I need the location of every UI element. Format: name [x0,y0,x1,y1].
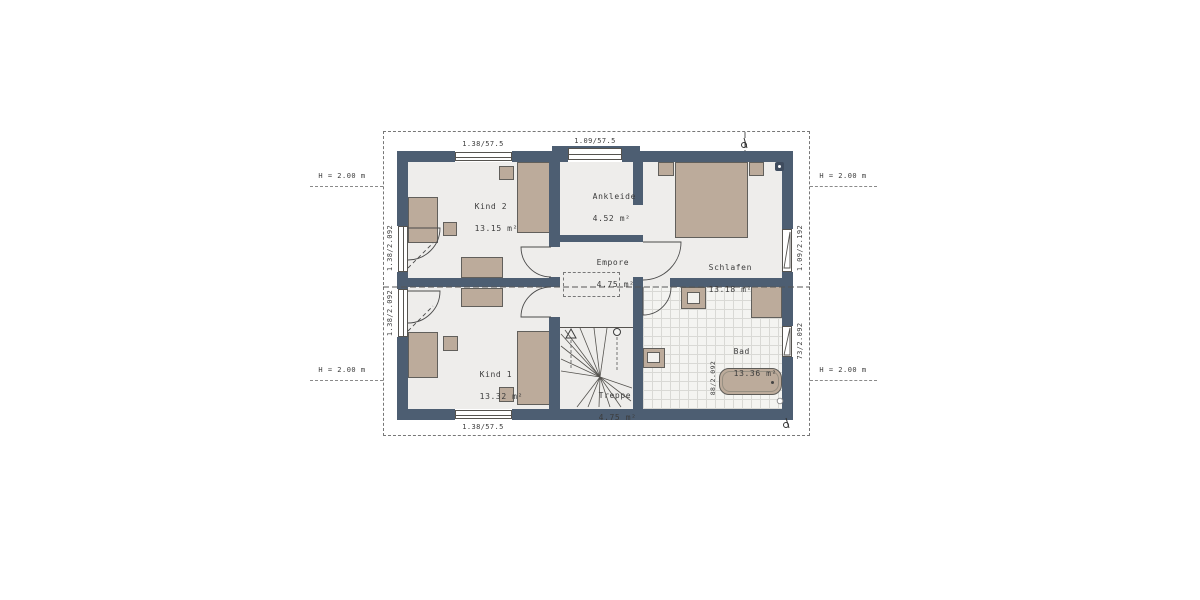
height-marker-line [810,186,877,187]
chair [443,336,458,351]
room-name: Schlafen [709,263,752,272]
wall-segment [397,151,408,226]
room-area: 13.18 m² [709,285,752,294]
french-door-kind2-left [398,226,408,272]
dim-door-kind1-left: 1.38/2.092 [386,290,394,336]
wall-segment [397,337,408,420]
height-marker-line [810,380,877,381]
nightstand-right [749,162,764,176]
height-marker-left-top: H = 2.00 m [318,172,365,180]
dresser [461,257,503,278]
room-area: 4.75 m² [597,280,635,289]
room-label-schlafen: Schlafen 13.18 m² [687,251,752,306]
room-label-bad: Bad 13.36 m² [712,335,777,390]
room-name: Treppe [599,391,632,400]
room-area: 13.15 m² [475,224,518,233]
room-name: Empore [597,258,630,267]
dim-window-kind1-bottom: 1.38/57.5 [462,423,504,431]
ceiling-detector-icon [775,162,784,171]
dim-window-kind2-top: 1.38/57.5 [462,140,504,148]
room-label-treppe: Treppe 4.75 m² [577,379,637,434]
wall-segment [397,278,549,287]
window-kind2-top [455,152,512,161]
desk [408,197,438,243]
height-marker-line [310,380,383,381]
washbasin-bowl [647,352,660,363]
dim-window-ankleide-top: 1.09/57.5 [574,137,616,145]
dim-window-schlafen-right: 1.09/2.192 [796,225,804,271]
room-area: 4.52 m² [593,214,631,223]
desk [408,332,438,378]
room-label-kind1: Kind 1 13.32 m² [458,358,523,413]
height-marker-line [310,186,383,187]
window-bad-right [782,326,792,357]
room-name: Bad [734,347,750,356]
wall-segment [782,357,793,420]
shower [751,286,782,318]
dim-window-bad-right: 73/2.092 [796,323,804,360]
dresser [461,288,503,307]
room-name: Ankleide [593,192,636,201]
room-label-ankleide: Ankleide 4.52 m² [571,180,636,235]
room-name: Kind 1 [480,370,513,379]
bed [517,162,551,233]
room-name: Kind 2 [475,202,508,211]
window-ankleide-top [568,148,622,160]
french-door-kind1-left [398,289,408,337]
window-schlafen-right [782,229,792,272]
wall-segment [622,151,793,162]
height-marker-right-bottom: H = 2.00 m [819,366,866,374]
height-marker-left-bottom: H = 2.00 m [318,366,365,374]
dim-door-kind2-left: 1.38/2.092 [386,225,394,271]
stair-edge [560,327,633,328]
wall-segment [512,409,793,420]
dim-bad-interior: 88/2.092 [709,361,717,396]
wall-segment [549,235,643,242]
room-area: 13.36 m² [734,369,777,378]
wall-segment [512,151,568,162]
wall-segment [549,317,560,409]
floor-plan: Kind 2 13.15 m² Ankleide 4.52 m² Schlafe… [0,0,1200,600]
room-area: 13.32 m² [480,392,523,401]
room-label-empore: Empore 4.75 m² [575,246,635,301]
room-label-kind2: Kind 2 13.15 m² [453,190,518,245]
nightstand-left [658,162,674,176]
pillow [499,166,514,180]
wall-segment [549,277,560,287]
double-bed [675,162,748,238]
room-area: 4.75 m² [599,413,637,422]
height-marker-right-top: H = 2.00 m [819,172,866,180]
